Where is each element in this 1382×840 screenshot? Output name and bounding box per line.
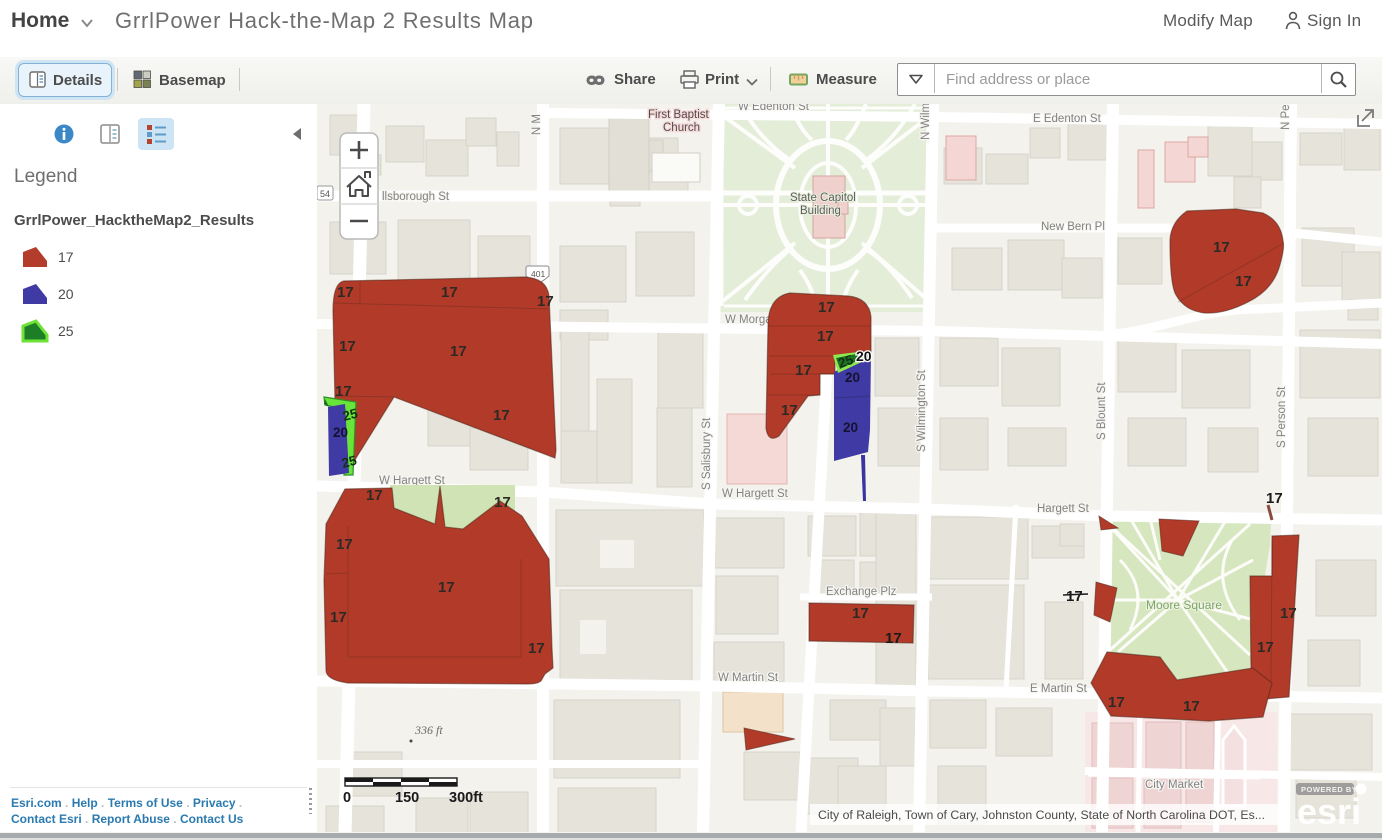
svg-text:S Blount St: S Blount St [1096,382,1108,440]
svg-text:20: 20 [843,420,858,435]
svg-text:17: 17 [795,362,812,379]
svg-text:17: 17 [337,284,354,301]
svg-text:E Edenton St: E Edenton St [1033,113,1102,125]
svg-text:W Edenton St: W Edenton St [738,104,810,113]
svg-text:City of Raleigh, Town of Cary,: City of Raleigh, Town of Cary, Johnston … [818,808,1265,822]
svg-text:0: 0 [343,790,351,806]
svg-text:17: 17 [1280,605,1297,622]
svg-text:N M: N M [531,114,543,135]
svg-text:E Martin St: E Martin St [1030,683,1088,695]
svg-text:City Market: City Market [1145,779,1204,791]
svg-text:17: 17 [537,293,554,310]
svg-text:17: 17 [438,579,455,596]
svg-text:17: 17 [335,383,352,400]
svg-text:State Capitol: State Capitol [790,192,856,204]
svg-text:S Wilmington St: S Wilmington St [916,369,928,452]
svg-text:N Wilm: N Wilm [920,104,932,140]
svg-text:Exchange Plz: Exchange Plz [826,586,897,598]
svg-text:Hargett St: Hargett St [1037,503,1090,515]
svg-text:17: 17 [1235,273,1252,290]
svg-text:20: 20 [845,370,860,385]
svg-text:17: 17 [885,630,902,647]
svg-text:20: 20 [333,425,348,440]
svg-text:17: 17 [441,284,458,301]
svg-text:17: 17 [336,536,353,553]
svg-text:17: 17 [852,605,869,622]
svg-text:17: 17 [1213,239,1230,256]
svg-text:llsborough St: llsborough St [382,191,450,203]
svg-text:First Baptist: First Baptist [648,109,710,121]
svg-text:Church: Church [663,122,700,134]
svg-text:17: 17 [528,640,545,657]
svg-text:17: 17 [1066,588,1083,605]
svg-text:New Bern Pl: New Bern Pl [1041,221,1105,233]
svg-text:W Hargett St: W Hargett St [722,488,789,500]
svg-text:N Per: N Per [1280,104,1292,130]
svg-text:54: 54 [320,189,330,199]
svg-text:Building: Building [800,205,841,217]
svg-text:17: 17 [817,328,834,345]
svg-text:17: 17 [1266,490,1283,507]
svg-text:17: 17 [1108,694,1125,711]
svg-text:300ft: 300ft [449,790,483,806]
svg-text:17: 17 [330,609,347,626]
svg-text:S Salisbury St: S Salisbury St [701,417,713,490]
svg-text:17: 17 [1257,639,1274,656]
svg-text:17: 17 [781,402,798,419]
svg-text:150: 150 [395,790,419,806]
svg-text:17: 17 [494,494,511,511]
svg-text:esri: esri [1297,791,1361,832]
svg-text:336 ft: 336 ft [414,723,443,737]
svg-text:Moore Square: Moore Square [1146,598,1222,612]
svg-text:17: 17 [366,487,383,504]
svg-text:17: 17 [450,343,467,360]
svg-text:W Martin St: W Martin St [718,672,779,684]
svg-text:S Person St: S Person St [1276,386,1288,448]
svg-text:401: 401 [531,269,545,279]
svg-text:17: 17 [493,407,510,424]
svg-text:17: 17 [818,299,835,316]
svg-text:20: 20 [856,348,872,364]
svg-text:17: 17 [339,338,356,355]
svg-text:17: 17 [1183,698,1200,715]
